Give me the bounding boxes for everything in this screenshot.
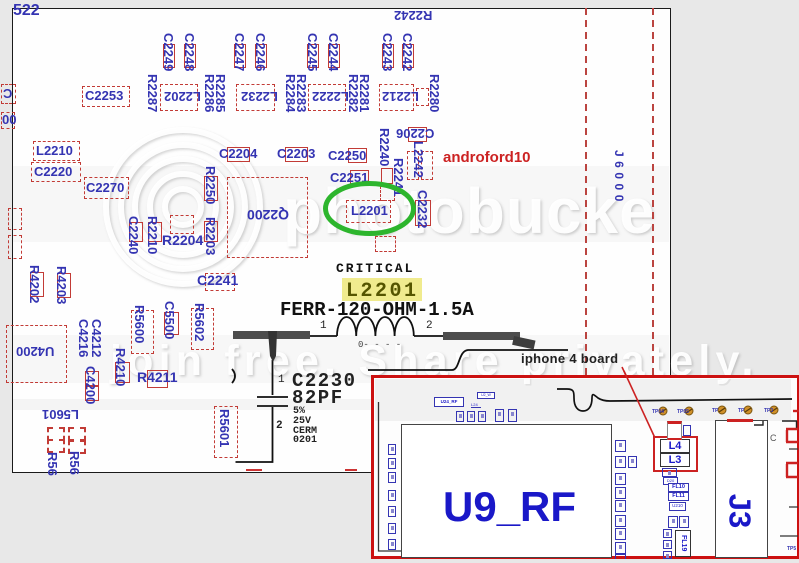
- svg-text:TP3: TP3: [764, 408, 773, 414]
- svg-text:TP5: TP5: [787, 546, 796, 552]
- svg-text:TP04: TP04: [652, 409, 664, 415]
- svg-text:TP05: TP05: [677, 409, 689, 415]
- svg-text:TP: TP: [738, 408, 745, 414]
- svg-text:TP: TP: [712, 408, 719, 414]
